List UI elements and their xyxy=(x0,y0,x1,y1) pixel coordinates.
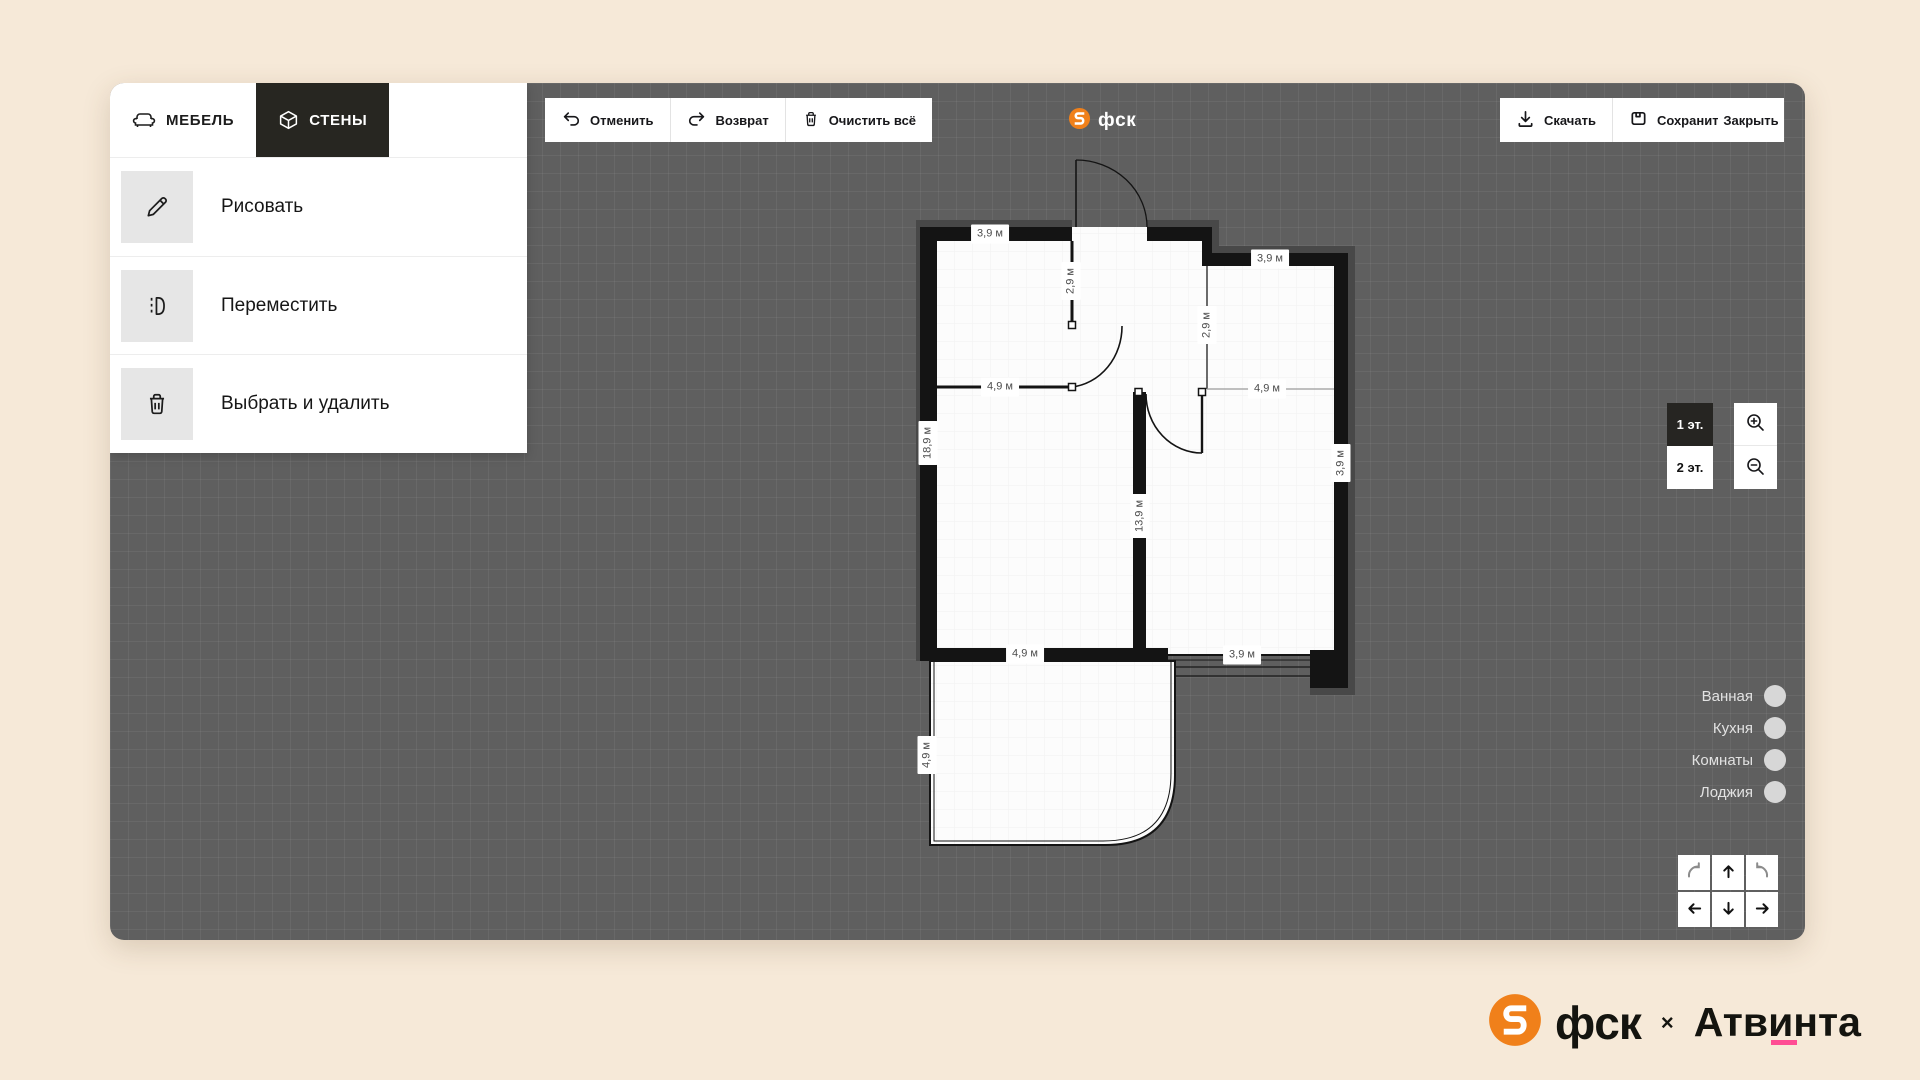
dimension-label: 3,9 м xyxy=(1251,250,1289,269)
pencil-icon xyxy=(121,171,193,243)
footer-fsk-text: фск xyxy=(1555,996,1641,1050)
zoom-out-icon xyxy=(1745,456,1766,480)
dimension-label: 18,9 м xyxy=(919,421,938,465)
zoom-in-button[interactable] xyxy=(1734,403,1777,446)
fsk-logo-icon xyxy=(1068,107,1091,135)
redo-button[interactable]: Возврат xyxy=(670,98,785,142)
download-button[interactable]: Скачать xyxy=(1500,98,1612,142)
dimension-label: 3,9 м xyxy=(1332,444,1351,482)
legend-row-bathroom: Ванная xyxy=(1560,685,1786,707)
floor-selector: 1 эт. 2 эт. xyxy=(1667,403,1713,489)
menu-item-move[interactable]: Переместить xyxy=(110,256,527,354)
tab-walls[interactable]: СТЕНЫ xyxy=(256,83,389,157)
history-toolbar: Отменить Возврат Очистить всё xyxy=(545,98,932,142)
menu-item-delete-label: Выбрать и удалить xyxy=(221,393,390,415)
legend-label: Ванная xyxy=(1702,688,1753,705)
sidebar: МЕБЕЛЬ СТЕНЫ Р xyxy=(110,83,527,453)
clear-all-label: Очистить всё xyxy=(829,113,916,128)
trash-icon xyxy=(802,110,820,131)
menu-item-move-label: Переместить xyxy=(221,295,337,317)
menu-item-draw[interactable]: Рисовать xyxy=(110,158,527,256)
fsk-logo-icon xyxy=(1488,993,1542,1052)
loggia-room xyxy=(930,661,1175,845)
tab-furniture-label: МЕБЕЛЬ xyxy=(166,112,234,129)
legend-toggle-kitchen[interactable] xyxy=(1764,717,1786,739)
legend-label: Кухня xyxy=(1713,720,1753,737)
dimension-label: 2,9 м xyxy=(1198,306,1217,344)
zoom-in-icon xyxy=(1745,412,1766,436)
arrow-down-icon xyxy=(1720,900,1737,920)
save-label: Сохранить xyxy=(1657,113,1727,128)
dimension-label: 4,9 м xyxy=(981,378,1019,397)
arrow-left-icon xyxy=(1686,900,1703,920)
header-brand-text: фск xyxy=(1098,110,1136,132)
legend-toggle-rooms[interactable] xyxy=(1764,749,1786,771)
dimension-label: 4,9 м xyxy=(918,736,937,774)
rotate-ccw-icon xyxy=(1685,862,1703,883)
close-button[interactable]: Закрыть xyxy=(1718,98,1784,142)
door-jamb xyxy=(1199,389,1206,396)
undo-label: Отменить xyxy=(590,113,654,128)
undo-icon xyxy=(561,109,581,132)
legend-toggle-bathroom[interactable] xyxy=(1764,685,1786,707)
pan-rotate-pad xyxy=(1678,855,1778,927)
dimension-label: 4,9 м xyxy=(1248,380,1286,399)
pan-up-button[interactable] xyxy=(1712,855,1744,890)
rotate-cw-icon xyxy=(1753,862,1771,883)
download-icon xyxy=(1516,109,1535,131)
arrow-right-icon xyxy=(1754,900,1771,920)
cube-icon xyxy=(278,109,299,131)
entry-door-swing xyxy=(1076,160,1147,227)
legend-label: Комнаты xyxy=(1692,752,1753,769)
dimension-label: 2,9 м xyxy=(1062,262,1081,300)
legend-toggle-loggia[interactable] xyxy=(1764,781,1786,803)
dimension-label: 13,9 м xyxy=(1131,494,1150,538)
redo-icon xyxy=(687,109,707,132)
zoom-controls xyxy=(1734,403,1777,489)
save-icon xyxy=(1629,109,1648,131)
redo-label: Возврат xyxy=(716,113,769,128)
undo-button[interactable]: Отменить xyxy=(545,98,670,142)
tab-walls-label: СТЕНЫ xyxy=(309,112,367,129)
pan-right-button[interactable] xyxy=(1746,892,1778,927)
pan-left-button[interactable] xyxy=(1678,892,1710,927)
door-jamb xyxy=(1069,322,1076,329)
editor-canvas[interactable]: 3,9 м2,9 м3,9 м2,9 м4,9 м4,9 м18,9 м3,9 … xyxy=(110,83,1805,940)
footer-separator: × xyxy=(1661,1010,1674,1036)
trash-icon xyxy=(121,368,193,440)
legend-label: Лоджия xyxy=(1700,784,1753,801)
tab-furniture[interactable]: МЕБЕЛЬ xyxy=(110,83,256,157)
legend-row-rooms: Комнаты xyxy=(1560,749,1786,771)
footer-brands: фск × Атвинта xyxy=(1488,993,1861,1052)
dimension-label: 3,9 м xyxy=(971,225,1009,244)
room-legend: Ванная Кухня Комнаты Лоджия xyxy=(1560,685,1786,813)
footer-atvinta-text: Атвинта xyxy=(1694,999,1861,1046)
download-label: Скачать xyxy=(1544,113,1596,128)
move-wall-icon xyxy=(121,270,193,342)
arrow-up-icon xyxy=(1720,863,1737,883)
floor-plan[interactable]: 3,9 м2,9 м3,9 м2,9 м4,9 м4,9 м18,9 м3,9 … xyxy=(900,143,1380,873)
sidebar-tabs: МЕБЕЛЬ СТЕНЫ xyxy=(110,83,527,158)
rotate-ccw-button[interactable] xyxy=(1678,855,1710,890)
clear-all-button[interactable]: Очистить всё xyxy=(785,98,932,142)
header-brand: фск xyxy=(1068,107,1136,135)
legend-row-loggia: Лоджия xyxy=(1560,781,1786,803)
walls-menu: Рисовать Переместить xyxy=(110,158,527,452)
rotate-cw-button[interactable] xyxy=(1746,855,1778,890)
sofa-icon xyxy=(132,111,156,129)
atvinta-pink-underline xyxy=(1771,1040,1797,1045)
dimension-label: 3,9 м xyxy=(1223,646,1261,665)
floor-1-button[interactable]: 1 эт. xyxy=(1667,403,1713,446)
legend-row-kitchen: Кухня xyxy=(1560,717,1786,739)
zoom-out-button[interactable] xyxy=(1734,446,1777,489)
menu-item-draw-label: Рисовать xyxy=(221,196,303,218)
pan-down-button[interactable] xyxy=(1712,892,1744,927)
atvinta-label: Атвинта xyxy=(1694,999,1861,1045)
file-actions: Скачать Сохранить xyxy=(1500,98,1743,142)
door-jamb xyxy=(1069,384,1076,391)
menu-item-delete[interactable]: Выбрать и удалить xyxy=(110,354,527,452)
door-jamb xyxy=(1135,389,1142,396)
floor-2-button[interactable]: 2 эт. xyxy=(1667,446,1713,489)
dimension-label: 4,9 м xyxy=(1006,645,1044,664)
